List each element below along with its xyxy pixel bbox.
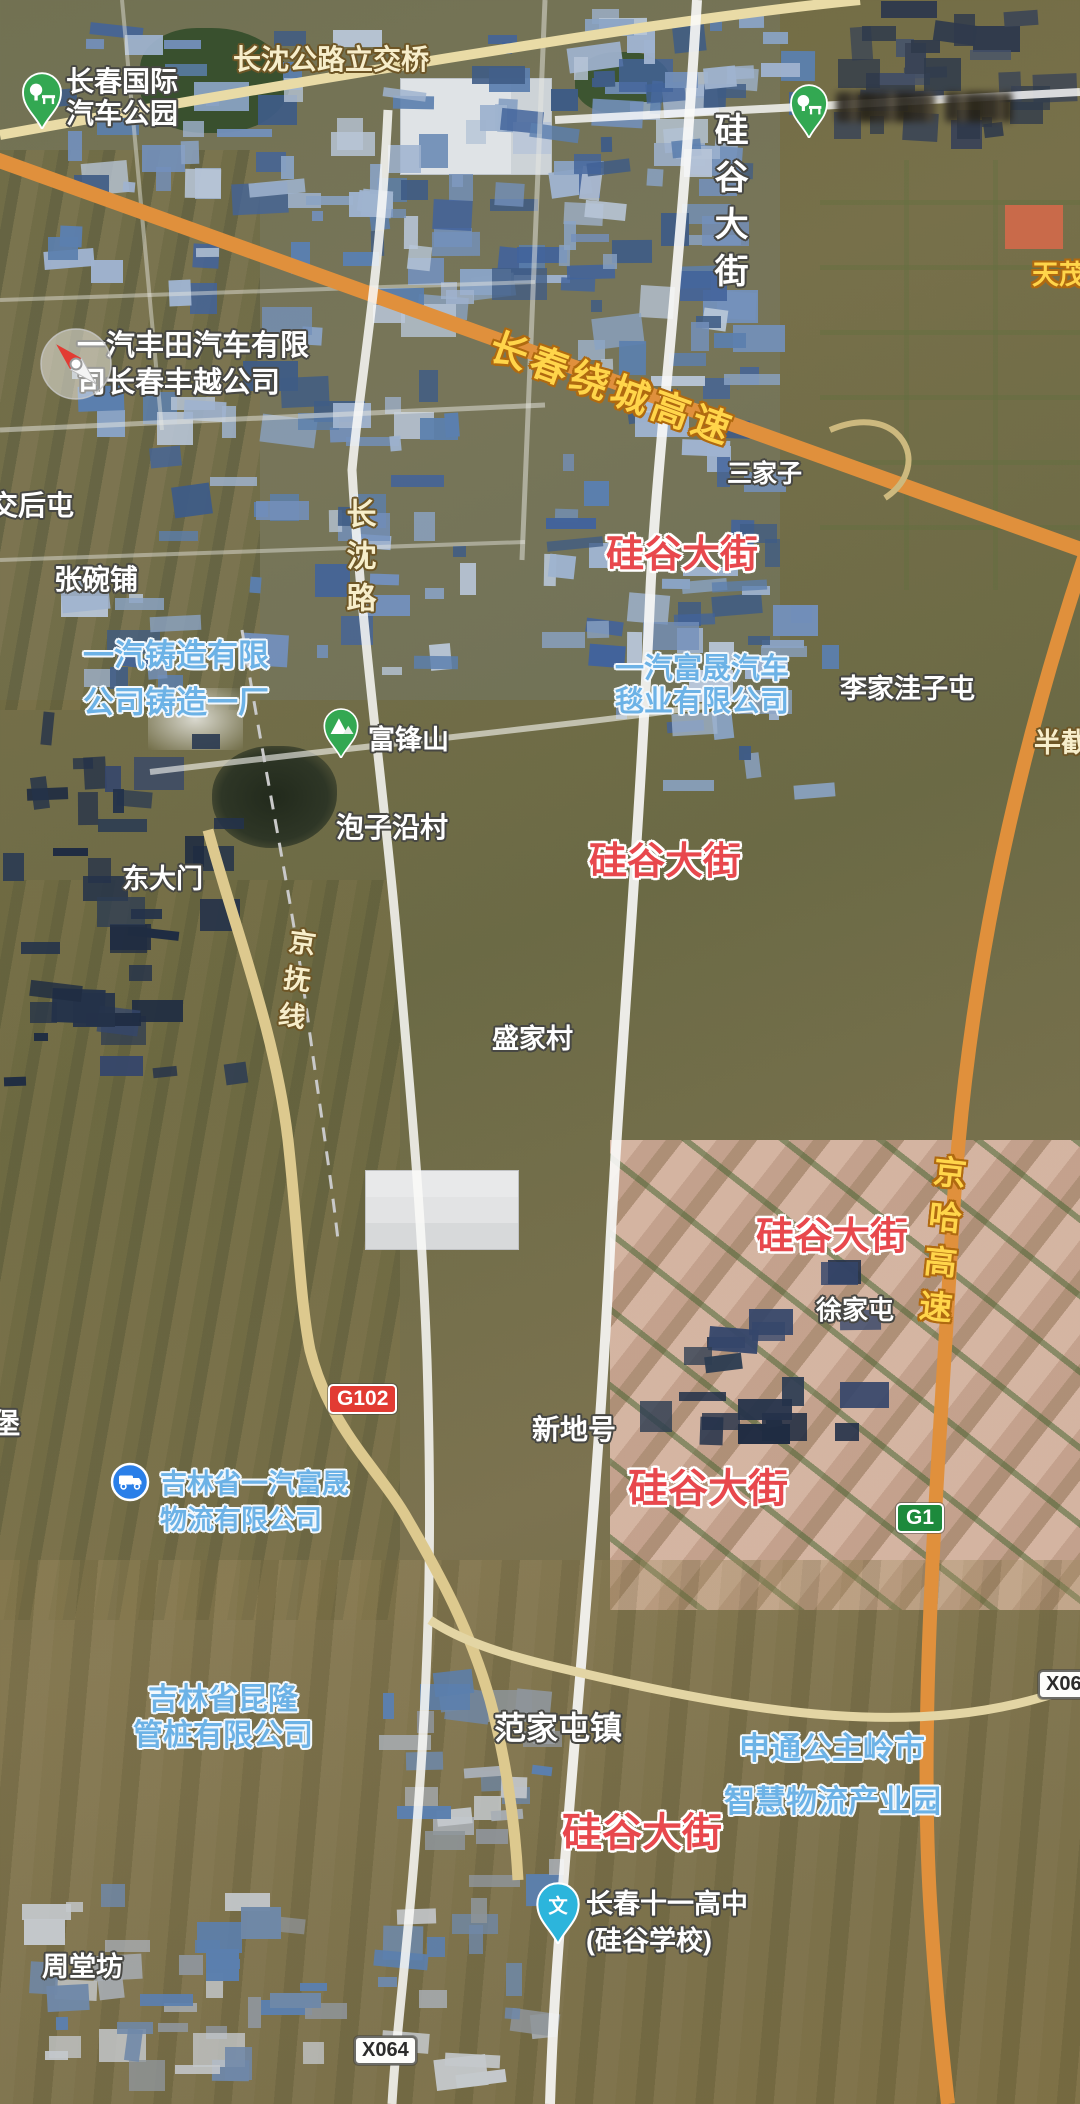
park-pin-top-right-icon [788, 84, 830, 138]
road-label-changshen-lu: 长沈路 [340, 498, 375, 624]
park-pin-auto-park[interactable] [20, 72, 64, 134]
poi-label-changchun-no11-high-school-line-2: (硅谷学校) [586, 1923, 748, 1960]
road-shield-x063: X063 [1038, 1670, 1080, 1699]
annotations-layer: 长春国际汽车公园长沈公路立交桥硅谷大街天茂湖长春绕城高速一汽丰田汽车有限司长春丰… [0, 0, 1080, 2104]
poi-label-banjie[interactable]: 半截 [1034, 728, 1080, 759]
road-shield-x064: X064 [354, 2036, 417, 2065]
poi-label-sanjiazi[interactable]: 三家子 [727, 460, 802, 489]
road-label-jingha-expressway: 京哈高速 [911, 1153, 968, 1336]
satellite-map-canvas[interactable]: { "map": { "pins": [ {"name":"park-pin-a… [0, 0, 1080, 2104]
poi-label-xujiatun[interactable]: 徐家屯 [816, 1296, 894, 1326]
poi-label-shengjiacun[interactable]: 盛家村 [492, 1024, 573, 1055]
road-label-guigu-dajie-5: 硅谷大街 [562, 1810, 722, 1856]
poi-label-jilin-kunlong-line-1: 吉林省昆隆 [128, 1682, 318, 1718]
road-label-guigu-dajie-4: 硅谷大街 [628, 1466, 788, 1512]
redacted-label-segment-2 [945, 92, 1012, 122]
poi-label-zhangwanpu[interactable]: 张碗铺 [54, 564, 138, 596]
compass-pin-faw-toyota-icon [38, 326, 114, 402]
poi-label-jilin-faw-fusheng-logistics-line-2: 物流有限公司 [160, 1502, 349, 1538]
poi-label-faw-fusheng-tanye-line-2: 毯业有限公司 [615, 686, 789, 719]
compass-pin-faw-toyota[interactable] [38, 326, 114, 407]
poi-label-changchun-intl-auto-park[interactable]: 长春国际汽车公园 [66, 66, 178, 130]
poi-label-jilin-kunlong[interactable]: 吉林省昆隆管桩有限公司 [128, 1682, 318, 1754]
logistics-pin-truck[interactable] [110, 1462, 150, 1507]
poi-label-zhoutangfang[interactable]: 周堂坊 [42, 1952, 123, 1983]
poi-label-bu-clipped[interactable]: 堡 [0, 1408, 20, 1440]
park-pin-top-right[interactable] [788, 84, 830, 143]
poi-label-shentong-logistics-park-line-2: 智慧物流产业园 [724, 1775, 940, 1828]
poi-label-faw-casting[interactable]: 一汽铸造有限公司铸造一厂 [83, 632, 269, 726]
poi-label-tianmao-lake[interactable]: 天茂湖 [1032, 260, 1080, 291]
poi-label-faw-casting-line-1: 一汽铸造有限 [83, 632, 269, 679]
poi-label-faw-casting-line-2: 公司铸造一厂 [83, 679, 269, 726]
poi-label-fufengshan[interactable]: 富锋山 [368, 725, 449, 756]
park-pin-auto-park-icon [20, 72, 64, 129]
poi-label-changchun-no11-high-school[interactable]: 长春十一高中(硅谷学校) [586, 1886, 748, 1960]
poi-label-changchun-no11-high-school-line-1: 长春十一高中 [586, 1886, 748, 1923]
road-label-guigu-dajie-1: 硅谷大街 [606, 534, 758, 578]
poi-label-lijiawazitun[interactable]: 李家洼子屯 [840, 674, 975, 705]
school-pin-wen-icon: 文 [534, 1882, 582, 1944]
mountain-pin-fufengshan-icon [322, 708, 360, 758]
road-label-changshen-overpass: 长沈公路立交桥 [233, 44, 429, 76]
poi-label-shentong-logistics-park-line-1: 申通公主岭市 [724, 1722, 940, 1775]
road-shield-g1: G1 [896, 1503, 944, 1533]
poi-label-faw-fusheng-tanye-line-1: 一汽富晟汽车 [615, 653, 789, 686]
road-label-guigu-dajie-2: 硅谷大街 [589, 841, 741, 885]
road-label-raocheng-expressway: 长春绕城高速 [483, 326, 740, 455]
poi-label-dongdamen[interactable]: 东大门 [122, 864, 203, 895]
redacted-label-segment-1 [836, 92, 935, 122]
poi-label-jilin-kunlong-line-2: 管桩有限公司 [128, 1718, 318, 1754]
poi-label-jilin-faw-fusheng-logistics[interactable]: 吉林省一汽富晟物流有限公司 [160, 1466, 349, 1538]
logistics-pin-truck-icon [110, 1462, 150, 1502]
poi-label-jilin-faw-fusheng-logistics-line-1: 吉林省一汽富晟 [160, 1466, 349, 1502]
poi-label-changchun-intl-auto-park-line-2: 汽车公园 [66, 98, 178, 130]
poi-label-changchun-intl-auto-park-line-1: 长春国际 [66, 66, 178, 98]
school-pin-wen[interactable]: 文 [534, 1882, 582, 1949]
mountain-pin-fufengshan[interactable] [322, 708, 360, 763]
road-shield-g102: G102 [328, 1384, 397, 1414]
poi-label-faw-fusheng-tanye[interactable]: 一汽富晟汽车毯业有限公司 [615, 653, 789, 719]
poi-label-shentong-logistics-park[interactable]: 申通公主岭市智慧物流产业园 [724, 1722, 940, 1828]
poi-label-jiaohoutun[interactable]: 交后屯 [0, 490, 74, 522]
poi-label-fanjiatunzhen[interactable]: 范家屯镇 [494, 1710, 622, 1747]
road-label-jingfu-line: 京抚线 [271, 926, 317, 1040]
road-label-guigu-dajie-north: 硅谷大街 [708, 112, 747, 300]
road-label-guigu-dajie-3: 硅谷大街 [756, 1216, 908, 1260]
poi-label-xindihao[interactable]: 新地号 [532, 1414, 616, 1446]
poi-label-paoziyancun[interactable]: 泡子沿村 [336, 812, 448, 844]
svg-text:文: 文 [548, 1894, 568, 1917]
